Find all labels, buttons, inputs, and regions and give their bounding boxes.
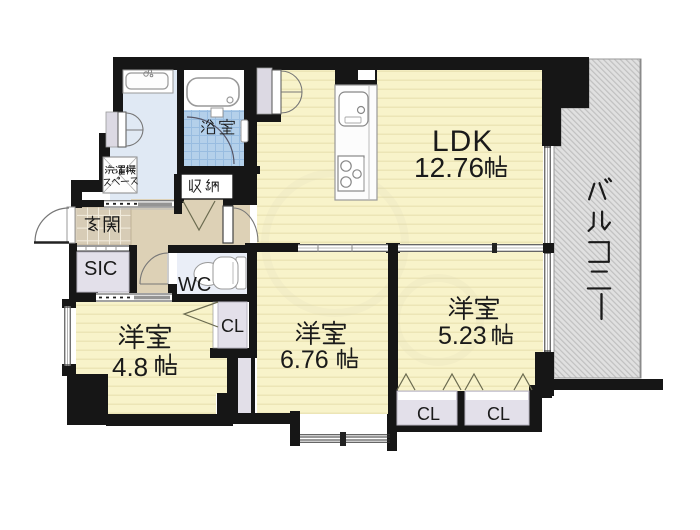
svg-text:SIC: SIC: [84, 258, 117, 280]
svg-text:6.76: 6.76: [280, 346, 329, 374]
svg-text:CL: CL: [487, 404, 510, 424]
svg-text:CL: CL: [221, 316, 244, 336]
svg-text:4.8: 4.8: [112, 352, 148, 382]
svg-text:12.76: 12.76: [414, 152, 484, 183]
svg-text:CL: CL: [417, 404, 440, 424]
svg-text:WC: WC: [178, 274, 211, 296]
svg-text:5.23: 5.23: [438, 322, 487, 350]
